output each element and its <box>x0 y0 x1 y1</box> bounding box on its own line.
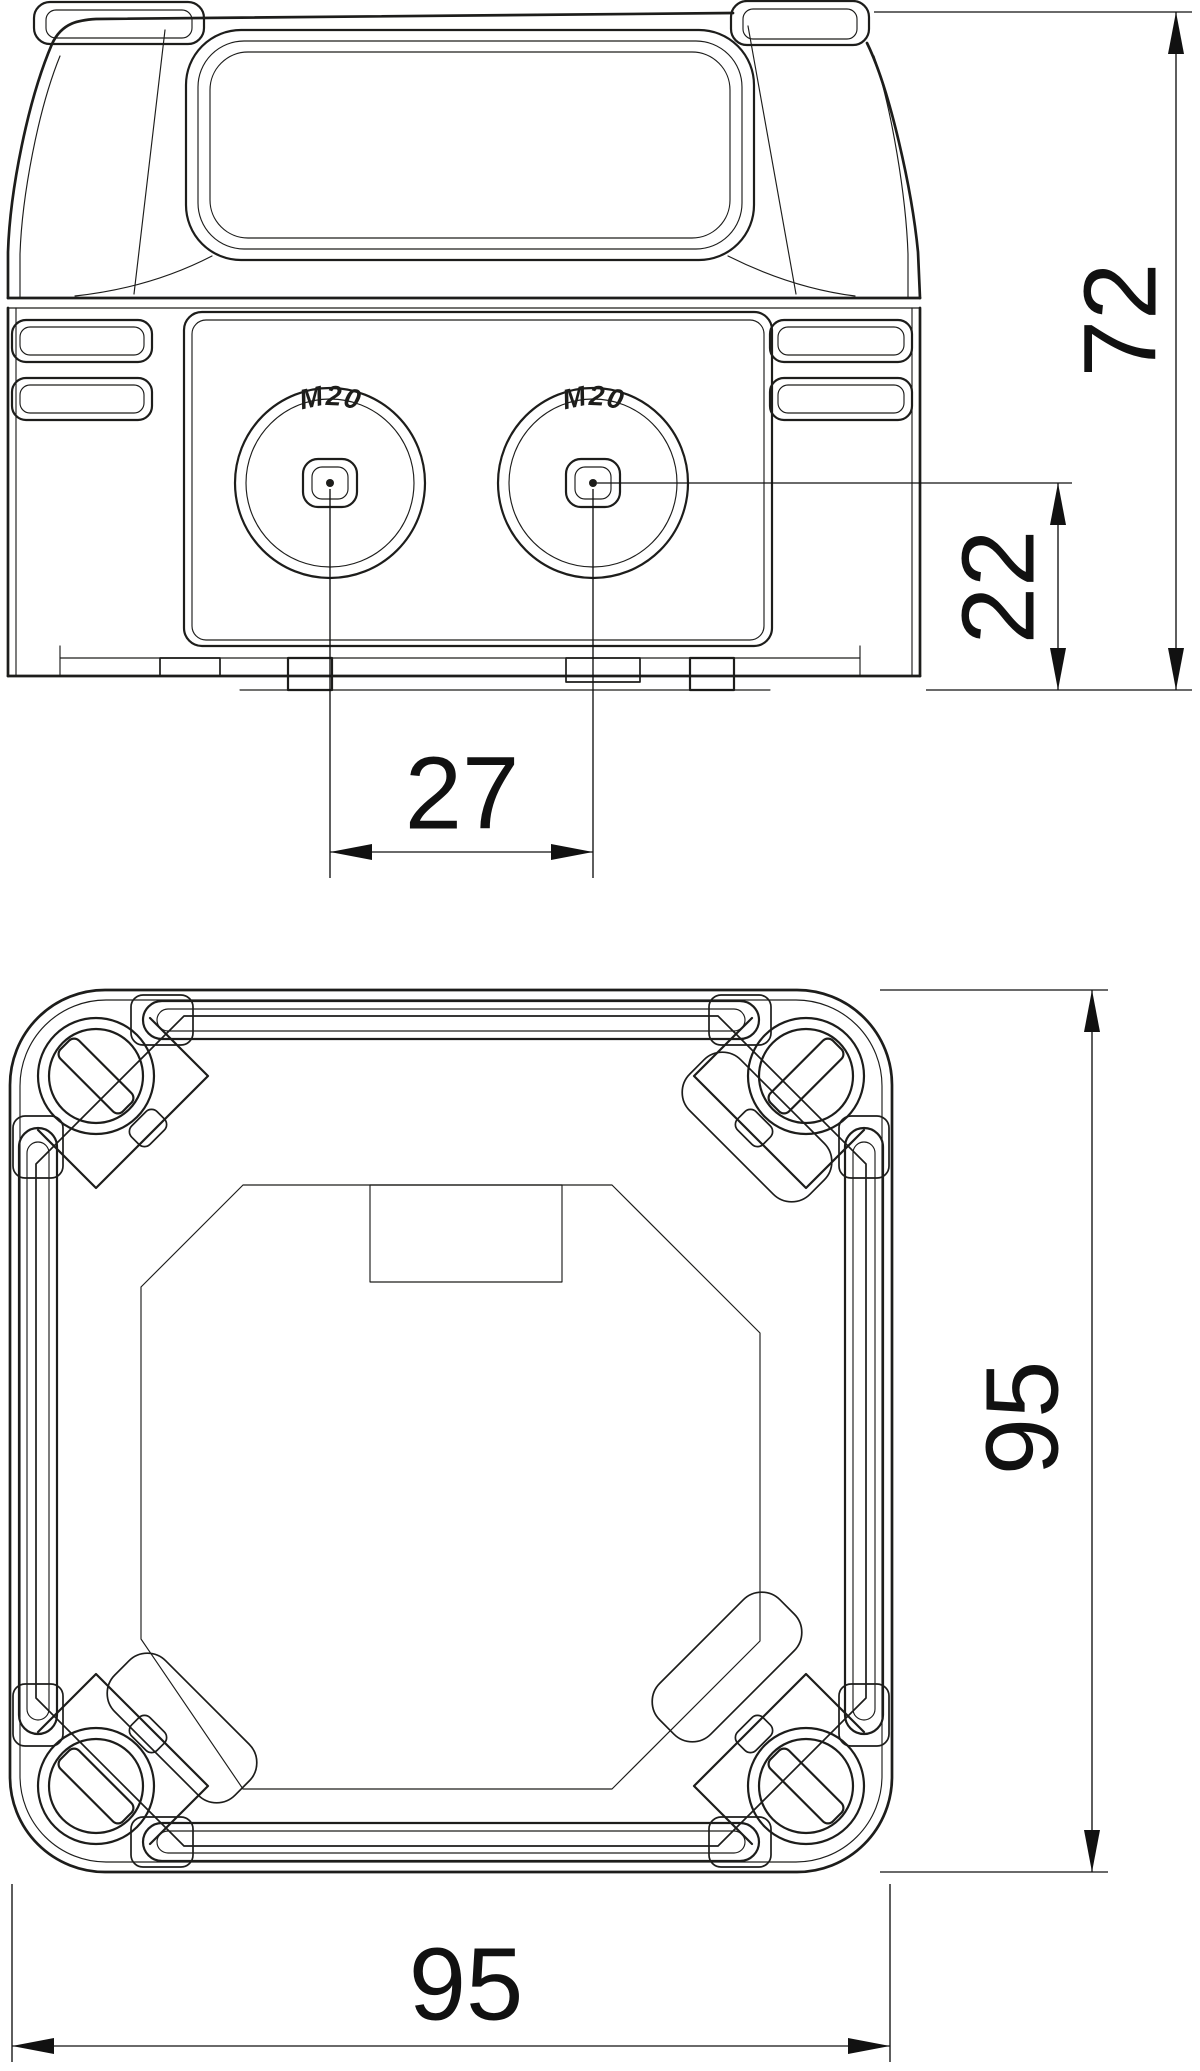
edge-rail-bottom <box>131 1817 771 1867</box>
dim-label-95-vertical: 95 <box>965 1361 1080 1476</box>
mounting-tab <box>690 658 734 690</box>
arrow-up-icon <box>1050 483 1066 525</box>
rail-inner <box>157 1009 745 1031</box>
m20-label-left-text: M20 <box>296 380 364 416</box>
vent-slot-inner <box>778 327 904 355</box>
arrow-down-icon <box>1168 648 1184 690</box>
lid-outline-right <box>867 43 920 298</box>
lid-outline-left <box>8 13 733 298</box>
lid <box>8 1 920 308</box>
vent-slot <box>12 320 152 362</box>
vent-slot <box>12 378 152 420</box>
screw-tab <box>732 1106 776 1150</box>
arrow-right-icon <box>848 2038 890 2054</box>
dimension-box-height-95: 95 <box>880 990 1108 1872</box>
mounting-tab <box>288 658 332 690</box>
lid-sweep-right <box>728 256 855 296</box>
rail-inner <box>157 1831 745 1853</box>
lid-edge-accent-right <box>748 26 796 294</box>
shell-outline-inner <box>20 1000 882 1862</box>
vent-slots-right <box>770 320 912 420</box>
corner-pad-bottom-left <box>96 1642 267 1813</box>
front-panel-outer <box>184 312 772 646</box>
screw-head <box>49 1739 143 1833</box>
screw-tab <box>126 1106 170 1150</box>
lid-inner-edge-left <box>20 56 60 298</box>
arrow-up-icon <box>1084 990 1100 1032</box>
rail-inner <box>853 1142 875 1720</box>
shell-rim-chamfered <box>36 1016 866 1846</box>
front-panel-inner <box>192 320 764 640</box>
corner-pad-top-right <box>671 1041 842 1212</box>
bottom-tabs <box>60 646 860 690</box>
dim-label-72: 72 <box>1063 263 1178 378</box>
arrow-up-icon <box>1168 12 1184 54</box>
lid-recess-floor <box>210 52 730 238</box>
mounting-tab-center <box>566 658 640 682</box>
label-recess-rect <box>370 1185 562 1282</box>
screw-tab <box>732 1712 776 1756</box>
vent-slot-inner <box>20 385 144 413</box>
m20-label-left: M20 <box>296 380 364 416</box>
dimension-entry-height-22: 22 <box>597 483 1072 690</box>
m20-label-right-text: M20 <box>559 380 627 416</box>
rail-outer <box>143 1823 759 1861</box>
lid-corner-boss-left-inner <box>46 10 192 38</box>
lid-edge-accent-left <box>134 30 165 294</box>
dim-label-95-horizontal: 95 <box>409 1927 524 2042</box>
tab-block <box>160 658 220 676</box>
rail-outer <box>845 1128 883 1734</box>
dimension-drawing: M20 M20 <box>0 0 1200 2071</box>
corner-screw-bottom-left <box>38 1712 170 1844</box>
dimension-box-width-95: 95 <box>12 1884 890 2062</box>
arrow-down-icon <box>1084 1830 1100 1872</box>
arrow-down-icon <box>1050 648 1066 690</box>
vent-slot <box>770 320 912 362</box>
bottom-view <box>10 990 892 1872</box>
m20-label-right: M20 <box>559 380 627 416</box>
dimension-entry-spacing-27: 27 <box>330 489 593 878</box>
lid-recess-mid <box>198 41 742 249</box>
arrow-left-icon <box>330 844 372 860</box>
lid-plate-octagon <box>141 1185 760 1789</box>
lid-plate <box>96 1041 842 1813</box>
vent-slot-inner <box>778 385 904 413</box>
rail-outer <box>143 1001 759 1039</box>
side-view: M20 M20 <box>8 1 920 690</box>
vent-slot-inner <box>20 327 144 355</box>
center-dot <box>326 479 334 487</box>
corner-chamfers <box>38 1018 864 1844</box>
dim-label-27: 27 <box>405 736 520 851</box>
dim-label-22: 22 <box>941 530 1056 645</box>
corner-screw-top-right <box>732 1018 864 1150</box>
corner-pad-bottom-right <box>641 1581 812 1752</box>
vent-slots-left <box>12 320 152 420</box>
lid-corner-boss-right-inner <box>743 9 857 39</box>
lid-recess-outer <box>186 30 754 260</box>
screw-head <box>759 1029 853 1123</box>
rail-outer <box>19 1128 57 1734</box>
rail-inner <box>27 1142 49 1720</box>
vent-slot <box>770 378 912 420</box>
screw-head <box>759 1739 853 1833</box>
screw-head <box>49 1029 143 1123</box>
corner-screw-bottom-right <box>732 1712 864 1844</box>
body <box>8 308 920 690</box>
lid-sweep-left <box>75 256 212 296</box>
corner-screw-top-left <box>38 1018 170 1150</box>
screw-tab <box>126 1712 170 1756</box>
center-dot <box>589 479 597 487</box>
arrow-right-icon <box>551 844 593 860</box>
edge-rail-top <box>131 995 771 1045</box>
arrow-left-icon <box>12 2038 54 2054</box>
lid-inner-edge-right <box>874 56 908 298</box>
